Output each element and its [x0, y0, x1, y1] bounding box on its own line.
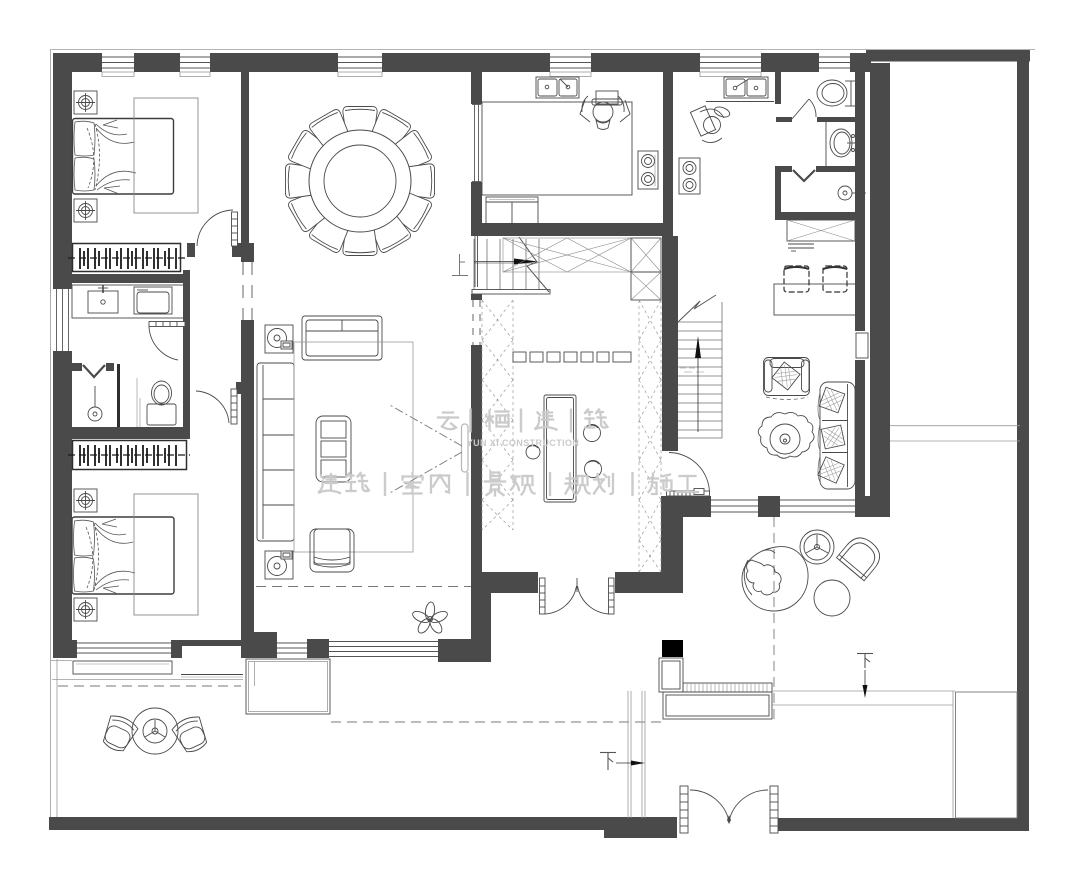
svg-text:YUN XI CONSTRUCTION: YUN XI CONSTRUCTION: [467, 438, 580, 448]
